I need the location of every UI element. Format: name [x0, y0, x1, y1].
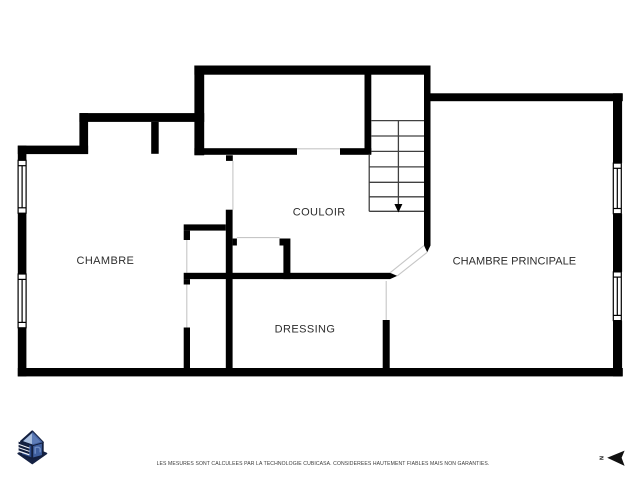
svg-text:LES MESURES SONT CALCULEES PAR: LES MESURES SONT CALCULEES PAR LA TECHNO…	[157, 461, 490, 467]
svg-text:CHAMBRE: CHAMBRE	[76, 255, 134, 267]
svg-text:CHAMBRE PRINCIPALE: CHAMBRE PRINCIPALE	[453, 255, 577, 267]
svg-text:COULOIR: COULOIR	[293, 206, 346, 218]
svg-text:DRESSING: DRESSING	[275, 323, 336, 335]
svg-text:N: N	[600, 456, 606, 460]
